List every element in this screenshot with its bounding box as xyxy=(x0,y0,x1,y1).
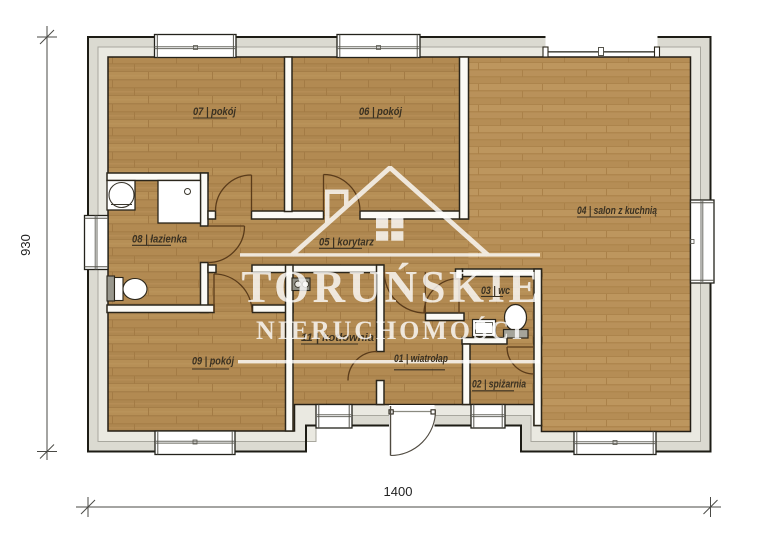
svg-text:05 | korytarz: 05 | korytarz xyxy=(319,237,374,249)
svg-text:03 | wc: 03 | wc xyxy=(481,285,510,297)
svg-text:01 | wiatrołap: 01 | wiatrołap xyxy=(394,353,448,365)
svg-text:04 | salon z kuchnią: 04 | salon z kuchnią xyxy=(577,205,657,217)
svg-text:09 | pokój: 09 | pokój xyxy=(192,356,235,368)
svg-text:1400: 1400 xyxy=(384,484,413,499)
svg-text:NIERUCHOMOŚCI: NIERUCHOMOŚCI xyxy=(256,316,522,345)
svg-text:02 | spiżarnia: 02 | spiżarnia xyxy=(472,379,526,391)
svg-text:930: 930 xyxy=(18,234,33,256)
svg-text:06 | pokój: 06 | pokój xyxy=(359,106,403,118)
svg-text:07 | pokój: 07 | pokój xyxy=(193,106,237,118)
svg-text:08 | łazienka: 08 | łazienka xyxy=(132,234,187,246)
